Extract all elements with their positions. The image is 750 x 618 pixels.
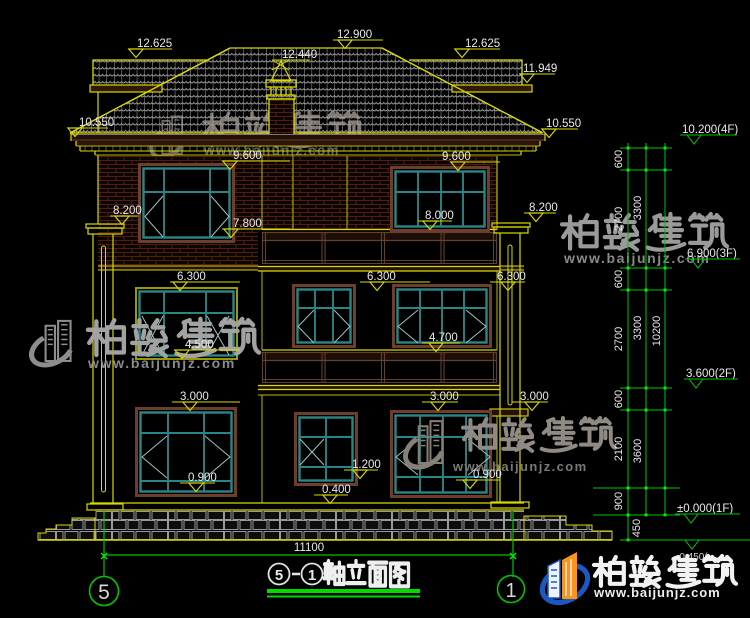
svg-text:3300: 3300: [632, 196, 644, 220]
svg-text:0.900: 0.900: [473, 469, 502, 481]
svg-text:10.550: 10.550: [546, 118, 581, 130]
svg-text:0.900: 0.900: [188, 472, 217, 484]
svg-text:www.baijunjz.com: www.baijunjz.com: [87, 355, 236, 371]
svg-text:0.400: 0.400: [322, 484, 351, 496]
svg-text:1: 1: [308, 567, 316, 584]
svg-text:10200: 10200: [651, 316, 663, 347]
svg-text:6.900(3F): 6.900(3F): [687, 248, 737, 260]
svg-text:5: 5: [98, 581, 110, 604]
svg-text:3.000: 3.000: [430, 391, 459, 403]
svg-text:900: 900: [613, 492, 625, 510]
svg-text:6.300: 6.300: [367, 271, 396, 283]
svg-text:10.200(4F): 10.200(4F): [682, 124, 738, 136]
svg-text:450: 450: [631, 519, 643, 537]
svg-text:2700: 2700: [613, 327, 625, 351]
svg-text:11.949: 11.949: [523, 63, 557, 75]
svg-text:5: 5: [275, 567, 283, 584]
svg-text:6.300: 6.300: [497, 271, 526, 283]
svg-text:3.000: 3.000: [520, 391, 549, 403]
svg-text:9.600: 9.600: [233, 150, 262, 162]
svg-text:3.000: 3.000: [180, 391, 209, 403]
svg-text:9.600: 9.600: [442, 151, 471, 163]
svg-text:8.000: 8.000: [425, 210, 454, 222]
svg-text:1.200: 1.200: [352, 459, 381, 471]
svg-text:12.625: 12.625: [465, 38, 500, 50]
svg-text:6.300: 6.300: [177, 271, 206, 283]
svg-text:600: 600: [613, 390, 625, 408]
svg-text:12.440: 12.440: [282, 49, 317, 61]
svg-text:7.800: 7.800: [233, 218, 262, 230]
svg-text:8.200: 8.200: [113, 205, 142, 217]
svg-text:www.baijunjz.com: www.baijunjz.com: [593, 585, 721, 600]
svg-text:12.625: 12.625: [137, 38, 172, 50]
svg-text:600: 600: [613, 270, 625, 288]
svg-text:4.700: 4.700: [429, 332, 458, 344]
svg-text:1: 1: [505, 580, 516, 602]
svg-text:600: 600: [613, 150, 625, 168]
svg-text:3300: 3300: [632, 316, 644, 340]
svg-text:3600: 3600: [632, 439, 644, 463]
svg-text:11100: 11100: [294, 542, 324, 554]
svg-text:2700: 2700: [613, 207, 625, 231]
svg-text:10.550: 10.550: [79, 117, 114, 129]
svg-text:3.600(2F): 3.600(2F): [686, 368, 736, 380]
svg-text:8.200: 8.200: [529, 202, 558, 214]
svg-text:2100: 2100: [613, 437, 625, 461]
svg-text:12.900: 12.900: [337, 29, 372, 41]
svg-text:4.500: 4.500: [185, 339, 214, 351]
svg-text:±0.000(1F): ±0.000(1F): [677, 503, 733, 515]
